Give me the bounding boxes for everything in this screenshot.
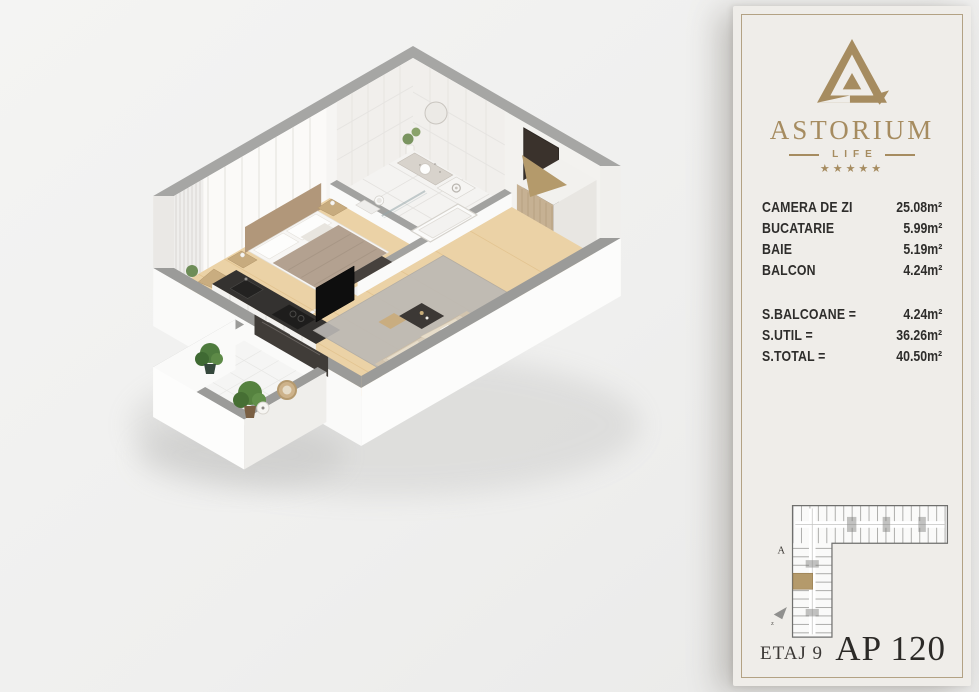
room-row: BUCATARIE 5.99m² xyxy=(762,220,942,241)
room-value: 5.19m² xyxy=(903,240,942,257)
total-row: S.TOTAL = 40.50m² xyxy=(762,348,942,369)
total-label: S.UTIL = xyxy=(762,326,813,343)
room-area-list: CAMERA DE ZI 25.08m² BUCATARIE 5.99m² BA… xyxy=(754,199,950,283)
room-value: 4.24m² xyxy=(903,261,942,278)
total-row: S.UTIL = 36.26m² xyxy=(762,327,942,348)
room-row: BALCON 4.24m² xyxy=(762,262,942,283)
dash-left xyxy=(789,154,819,156)
floor-label: ETAJ 9 xyxy=(760,643,823,669)
brand-subtitle-row: LIFE xyxy=(789,149,915,160)
mirror xyxy=(425,102,447,124)
brand-subtitle: LIFE xyxy=(826,149,878,160)
total-label: S.TOTAL = xyxy=(762,347,826,364)
panel-footer: ETAJ 9 AP 120 xyxy=(760,629,946,669)
room-value: 25.08m² xyxy=(896,198,942,215)
total-value: 4.24m² xyxy=(903,305,942,322)
brand-stars: ★★★★★ xyxy=(820,162,884,175)
room-row: CAMERA DE ZI 25.08m² xyxy=(762,199,942,220)
room-label: BALCON xyxy=(762,261,816,278)
brand-block: ASTORIUM LIFE ★★★★★ xyxy=(754,29,950,175)
room-label: CAMERA DE ZI xyxy=(762,198,853,215)
apartment-label: AP 120 xyxy=(835,629,946,669)
panel-border: ASTORIUM LIFE ★★★★★ CAMERA DE ZI 25.08m²… xyxy=(741,14,963,678)
total-value: 36.26m² xyxy=(896,326,942,343)
room-label: BAIE xyxy=(762,240,792,257)
brand-name: ASTORIUM xyxy=(770,115,935,146)
brand-logo-icon xyxy=(815,39,889,111)
washbasin xyxy=(420,164,431,175)
room-row: BAIE 5.19m² xyxy=(762,241,942,262)
floorplan-illustration xyxy=(0,0,740,692)
total-label: S.BALCOANE = xyxy=(762,305,856,322)
total-row: S.BALCOANE = 4.24m² xyxy=(762,306,942,327)
plant xyxy=(186,265,198,277)
compass-letter: z xyxy=(771,620,774,627)
section-letter: A xyxy=(778,546,786,557)
compass-icon: z xyxy=(771,607,787,627)
highlighted-apartment xyxy=(793,573,813,589)
total-value: 40.50m² xyxy=(896,347,942,364)
area-totals-list: S.BALCOANE = 4.24m² S.UTIL = 36.26m² S.T… xyxy=(754,306,950,369)
info-panel: ASTORIUM LIFE ★★★★★ CAMERA DE ZI 25.08m²… xyxy=(733,6,971,686)
dash-right xyxy=(885,154,915,156)
room-value: 5.99m² xyxy=(903,219,942,236)
brochure-page: ASTORIUM LIFE ★★★★★ CAMERA DE ZI 25.08m²… xyxy=(0,0,979,692)
room-label: BUCATARIE xyxy=(762,219,834,236)
